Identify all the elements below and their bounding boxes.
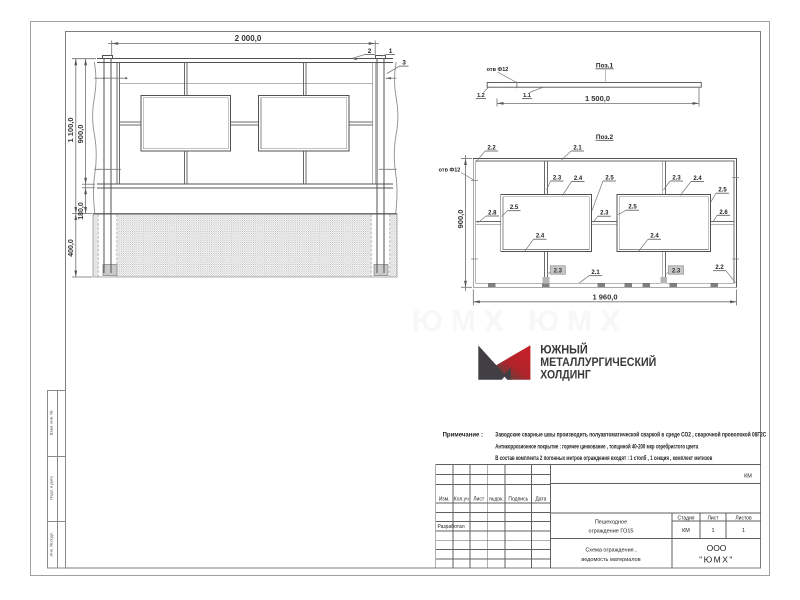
svg-text:Взам. инв. №: Взам. инв. № (49, 411, 54, 436)
svg-text:КМ: КМ (682, 528, 690, 534)
svg-text:Подп. и дата: Подп. и дата (49, 475, 54, 499)
svg-text:400,0: 400,0 (68, 239, 75, 257)
svg-text:1 500,0: 1 500,0 (585, 94, 610, 103)
svg-text:180,0: 180,0 (78, 202, 85, 220)
svg-text:ограждение ГО15: ограждение ГО15 (589, 529, 634, 535)
svg-text:1: 1 (389, 48, 393, 55)
svg-text:ЮЖНЫЙ: ЮЖНЫЙ (540, 344, 588, 357)
svg-text:Пешеходное: Пешеходное (595, 520, 627, 526)
svg-text:Стадия: Стадия (677, 515, 694, 521)
svg-text:3: 3 (402, 60, 406, 67)
svg-text:2: 2 (368, 48, 372, 55)
svg-text:МЕТАЛЛУРГИЧЕСКИЙ: МЕТАЛЛУРГИЧЕСКИЙ (540, 356, 656, 369)
svg-text:ведомость материалов: ведомость материалов (581, 557, 640, 563)
svg-text:В состав комплекта 2 погонных: В состав комплекта 2 погонных метров огр… (495, 455, 712, 462)
svg-text:1: 1 (742, 528, 745, 534)
svg-text:Разработал: Разработал (438, 524, 465, 530)
svg-text:Поз.1: Поз.1 (596, 62, 614, 69)
svg-text:"ЮМХ": "ЮМХ" (699, 555, 734, 565)
svg-text:Лист: Лист (473, 496, 485, 502)
svg-text:1: 1 (711, 528, 714, 534)
svg-text:1 100,0: 1 100,0 (66, 117, 75, 142)
svg-text:1 960,0: 1 960,0 (592, 293, 617, 302)
svg-text:2 000,0: 2 000,0 (235, 34, 262, 43)
svg-text:Поз.2: Поз.2 (596, 134, 614, 141)
svg-text:отв Ф12: отв Ф12 (487, 67, 509, 73)
svg-text:Заводские сварные швы производ: Заводские сварные швы производить полуав… (495, 432, 767, 439)
svg-text:Инв. № подл.: Инв. № подл. (49, 532, 54, 557)
svg-text:ХОЛДИНГ: ХОЛДИНГ (540, 369, 591, 381)
svg-text:2.3: 2.3 (554, 269, 563, 275)
svg-text:Антикоррозионное покрытие : го: Антикоррозионное покрытие : горячее цинк… (495, 443, 698, 450)
svg-text:Дата: Дата (535, 496, 546, 502)
svg-text:Примечание :: Примечание : (443, 433, 483, 439)
svg-text:ООО: ООО (707, 543, 727, 553)
svg-text:ЮМХ ЮМХ: ЮМХ ЮМХ (412, 305, 628, 338)
svg-text:№док.: №док. (489, 496, 504, 502)
svg-text:Кол.уч: Кол.уч (454, 496, 469, 502)
svg-text:Лист: Лист (708, 515, 720, 521)
svg-text:900,0: 900,0 (76, 125, 85, 144)
svg-text:900,0: 900,0 (456, 210, 465, 229)
svg-text:Изм.: Изм. (439, 496, 450, 502)
svg-text:отв Ф12: отв Ф12 (439, 168, 461, 174)
svg-text:Листов: Листов (735, 515, 752, 521)
svg-text:КМ: КМ (744, 474, 752, 480)
svg-text:Схема ограждения ,: Схема ограждения , (585, 548, 637, 554)
svg-text:2.3: 2.3 (672, 269, 681, 275)
svg-text:Подпись: Подпись (508, 496, 528, 502)
